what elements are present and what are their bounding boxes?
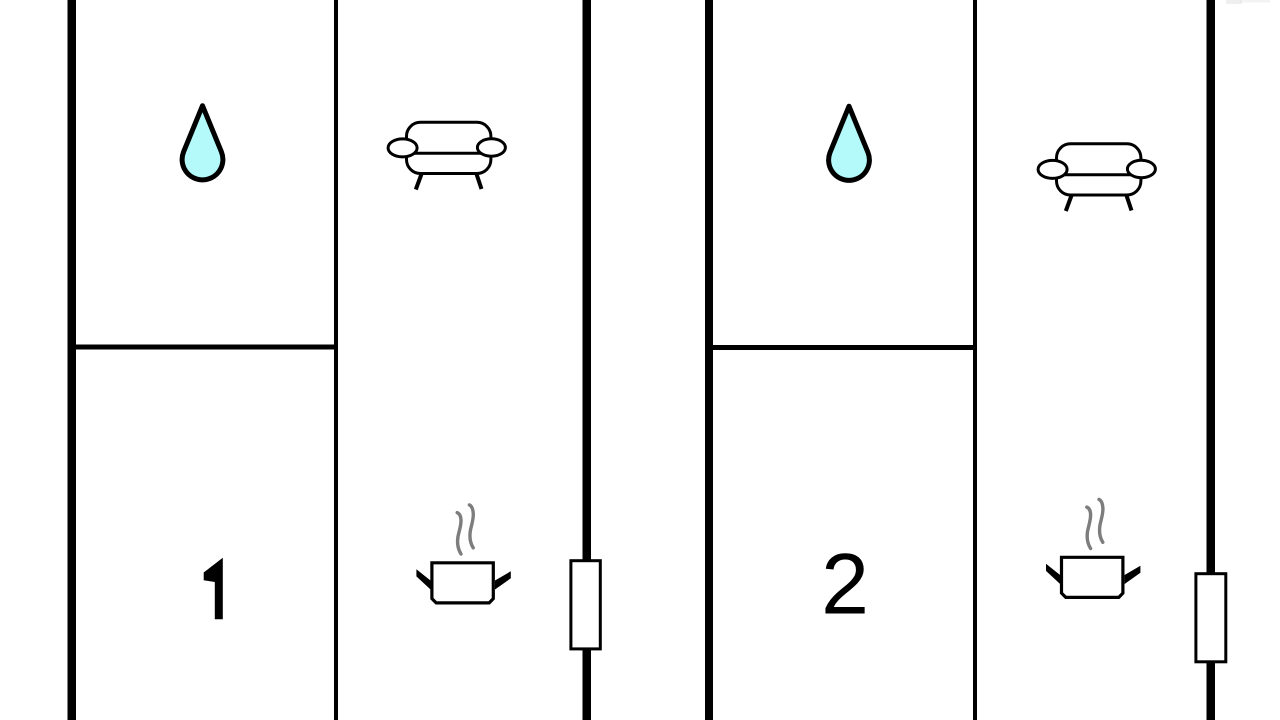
svg-text:2: 2: [821, 537, 869, 633]
